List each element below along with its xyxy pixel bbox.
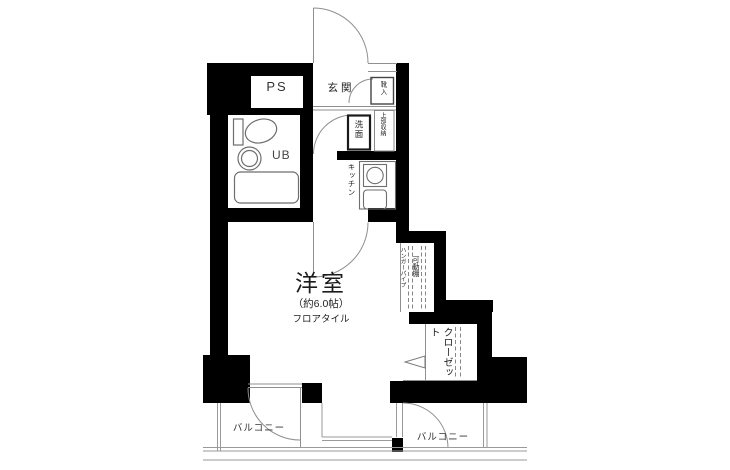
toilet-tank [234, 119, 244, 145]
entrance-label: 玄関 [312, 80, 370, 95]
washroom-door-swing [314, 115, 353, 154]
upper-storage-label: 上部収納 [378, 112, 387, 136]
shoe-cabinet-label: 靴入 [377, 81, 387, 96]
room-floor-label: フロアタイル [259, 311, 383, 325]
kitchen-counter [360, 162, 396, 210]
bathtub [235, 172, 299, 203]
unit-bath-label: UB [272, 148, 291, 162]
floorplan-drawing [0, 0, 730, 470]
balcony-left-label: バルコニー [216, 420, 302, 434]
toilet [242, 115, 280, 147]
hanger-pipe-label: ハンガーパイプ [398, 247, 407, 288]
kitchen-sink [364, 190, 387, 209]
closet-door-marker [405, 356, 425, 368]
floorplan-canvas: PS 玄関 靴入 洗面 上部収納 キッチン UB 洋室 （約6.0帖） フロアタ… [0, 0, 730, 470]
balcony-right-label: バルコニー [402, 429, 484, 443]
movable-shelf-label: 可動棚 [410, 256, 420, 277]
closet-label: クローゼット [425, 327, 453, 381]
room-size-label: （約6.0帖） [259, 296, 383, 311]
kitchen-counter-outline [360, 162, 396, 210]
pipe-space-label: PS [251, 79, 303, 94]
kitchen-label: キッチン [346, 163, 357, 197]
kitchen-burner [367, 167, 383, 183]
entrance-door-swing [314, 8, 369, 63]
wash-bowl-inner [242, 151, 258, 167]
washbasin-label: 洗面 [353, 120, 365, 139]
walls [203, 63, 527, 452]
room-name-label: 洋室 [259, 264, 383, 298]
balcony-left-door-swing [248, 384, 302, 448]
